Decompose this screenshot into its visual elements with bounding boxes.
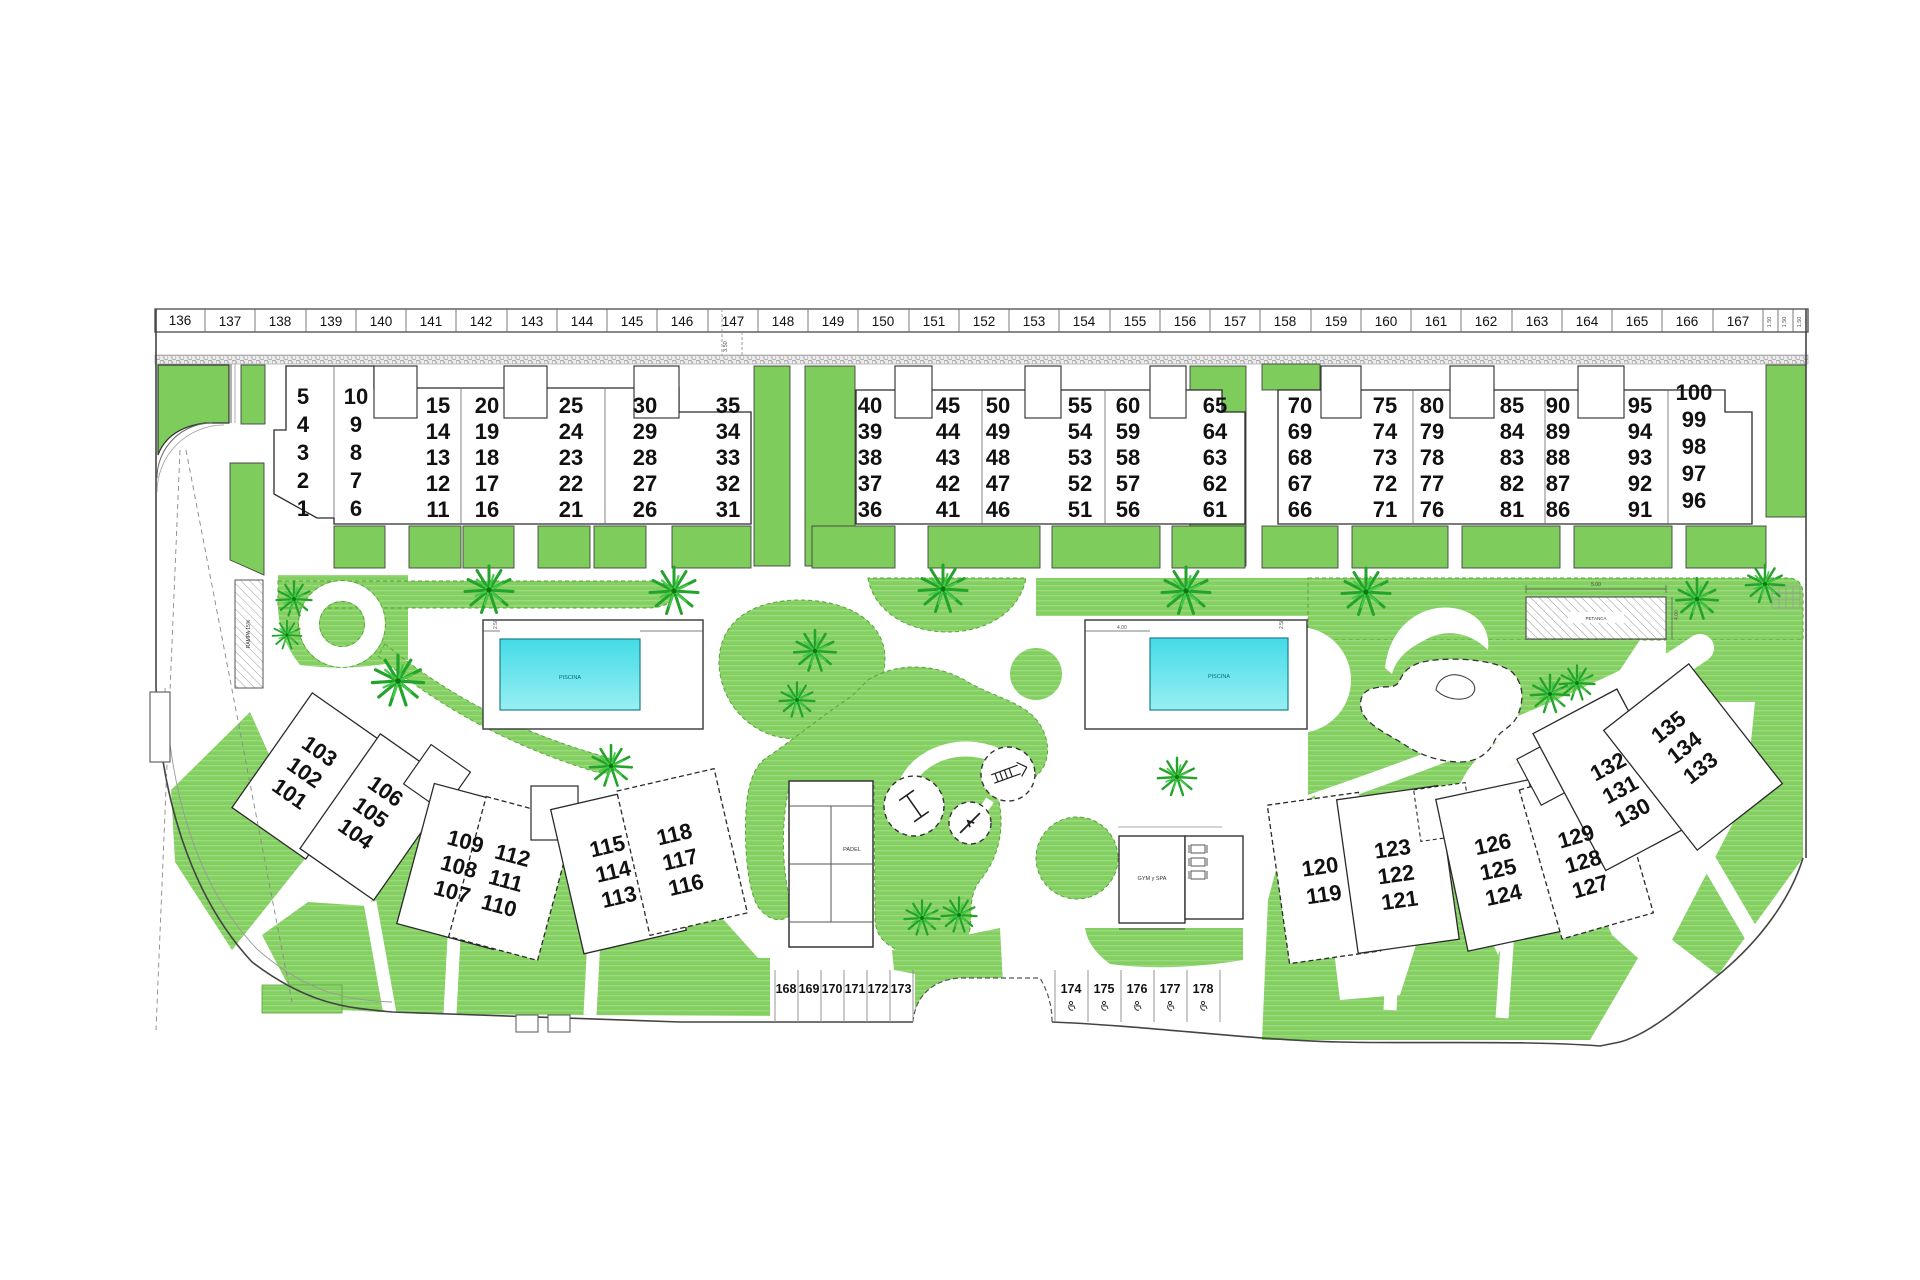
svg-text:178: 178 <box>1193 982 1214 996</box>
svg-text:157: 157 <box>1224 314 1247 329</box>
svg-text:34: 34 <box>716 419 741 444</box>
svg-text:67: 67 <box>1288 471 1312 496</box>
svg-text:90: 90 <box>1546 393 1570 418</box>
svg-text:168: 168 <box>776 982 797 996</box>
svg-text:141: 141 <box>420 314 443 329</box>
svg-text:37: 37 <box>858 471 882 496</box>
svg-text:82: 82 <box>1500 471 1524 496</box>
svg-text:144: 144 <box>571 314 594 329</box>
svg-text:121: 121 <box>1380 885 1420 915</box>
svg-text:PETANCA: PETANCA <box>1586 616 1607 621</box>
svg-text:4: 4 <box>297 412 310 437</box>
svg-text:84: 84 <box>1500 419 1525 444</box>
svg-text:174: 174 <box>1061 982 1082 996</box>
svg-text:123: 123 <box>1373 834 1413 864</box>
svg-text:158: 158 <box>1274 314 1297 329</box>
svg-text:27: 27 <box>633 471 657 496</box>
svg-text:19: 19 <box>475 419 499 444</box>
svg-text:100: 100 <box>1676 380 1713 405</box>
svg-text:171: 171 <box>845 982 866 996</box>
svg-text:PISCINA: PISCINA <box>559 675 581 681</box>
svg-text:38: 38 <box>858 445 882 470</box>
svg-text:4.00: 4.00 <box>1674 610 1680 620</box>
svg-text:71: 71 <box>1373 497 1397 522</box>
svg-text:30: 30 <box>633 393 657 418</box>
svg-text:GYM y SPA: GYM y SPA <box>1138 876 1167 882</box>
svg-text:96: 96 <box>1682 488 1706 513</box>
svg-text:147: 147 <box>722 314 745 329</box>
svg-text:159: 159 <box>1325 314 1348 329</box>
svg-text:142: 142 <box>470 314 493 329</box>
svg-text:170: 170 <box>822 982 843 996</box>
svg-text:62: 62 <box>1203 471 1227 496</box>
svg-text:162: 162 <box>1475 314 1498 329</box>
svg-text:3: 3 <box>297 440 309 465</box>
svg-text:155: 155 <box>1124 314 1147 329</box>
svg-text:172: 172 <box>868 982 889 996</box>
svg-text:4.00: 4.00 <box>1117 625 1127 631</box>
svg-text:99: 99 <box>1682 407 1706 432</box>
svg-text:10: 10 <box>344 384 368 409</box>
svg-text:57: 57 <box>1116 471 1140 496</box>
svg-text:56: 56 <box>1116 497 1140 522</box>
svg-text:77: 77 <box>1420 471 1444 496</box>
svg-text:151: 151 <box>923 314 946 329</box>
svg-text:70: 70 <box>1288 393 1312 418</box>
svg-text:80: 80 <box>1420 393 1444 418</box>
svg-text:39: 39 <box>858 419 882 444</box>
svg-text:72: 72 <box>1373 471 1397 496</box>
svg-text:93: 93 <box>1628 445 1652 470</box>
svg-text:48: 48 <box>986 445 1010 470</box>
svg-text:137: 137 <box>219 314 242 329</box>
svg-text:169: 169 <box>799 982 820 996</box>
svg-text:138: 138 <box>269 314 292 329</box>
svg-text:153: 153 <box>1023 314 1046 329</box>
svg-text:150: 150 <box>872 314 895 329</box>
svg-text:64: 64 <box>1203 419 1228 444</box>
svg-text:120: 120 <box>1300 852 1340 882</box>
svg-text:145: 145 <box>621 314 644 329</box>
svg-text:143: 143 <box>521 314 544 329</box>
svg-text:60: 60 <box>1116 393 1140 418</box>
svg-text:136: 136 <box>169 313 192 328</box>
svg-text:PISCINA: PISCINA <box>1208 674 1230 680</box>
svg-text:43: 43 <box>936 445 960 470</box>
svg-text:166: 166 <box>1676 314 1699 329</box>
svg-text:52: 52 <box>1068 471 1092 496</box>
svg-text:91: 91 <box>1628 497 1652 522</box>
svg-text:1.50: 1.50 <box>1797 317 1803 328</box>
svg-text:31: 31 <box>716 497 740 522</box>
svg-text:1.50: 1.50 <box>1782 317 1788 328</box>
svg-text:122: 122 <box>1376 860 1416 890</box>
svg-text:50: 50 <box>986 393 1010 418</box>
svg-text:13: 13 <box>426 445 450 470</box>
svg-text:45: 45 <box>936 393 960 418</box>
svg-text:8: 8 <box>350 440 362 465</box>
svg-text:65: 65 <box>1203 393 1227 418</box>
svg-text:73: 73 <box>1373 445 1397 470</box>
svg-text:140: 140 <box>370 314 393 329</box>
svg-text:20: 20 <box>475 393 499 418</box>
svg-text:175: 175 <box>1094 982 1115 996</box>
svg-text:98: 98 <box>1682 434 1706 459</box>
svg-text:47: 47 <box>986 471 1010 496</box>
svg-text:18: 18 <box>475 445 499 470</box>
svg-text:2.50: 2.50 <box>1279 619 1285 629</box>
svg-text:68: 68 <box>1288 445 1312 470</box>
svg-text:3.50: 3.50 <box>723 341 729 352</box>
svg-text:29: 29 <box>633 419 657 444</box>
svg-text:24: 24 <box>559 419 584 444</box>
svg-text:177: 177 <box>1160 982 1181 996</box>
svg-text:23: 23 <box>559 445 583 470</box>
svg-text:11: 11 <box>426 497 449 522</box>
svg-text:32: 32 <box>716 471 740 496</box>
svg-text:74: 74 <box>1373 419 1398 444</box>
svg-text:83: 83 <box>1500 445 1524 470</box>
svg-text:176: 176 <box>1127 982 1148 996</box>
svg-text:51: 51 <box>1068 497 1092 522</box>
svg-text:53: 53 <box>1068 445 1092 470</box>
svg-text:26: 26 <box>633 497 657 522</box>
svg-text:152: 152 <box>973 314 996 329</box>
svg-text:5: 5 <box>297 384 309 409</box>
svg-text:89: 89 <box>1546 419 1570 444</box>
svg-text:163: 163 <box>1526 314 1549 329</box>
svg-text:PADEL: PADEL <box>843 847 861 853</box>
svg-text:61: 61 <box>1203 497 1227 522</box>
svg-text:95: 95 <box>1628 393 1652 418</box>
svg-text:41: 41 <box>936 497 960 522</box>
svg-text:22: 22 <box>559 471 583 496</box>
svg-text:66: 66 <box>1288 497 1312 522</box>
svg-text:16: 16 <box>475 497 499 522</box>
svg-text:42: 42 <box>936 471 960 496</box>
svg-text:54: 54 <box>1068 419 1093 444</box>
svg-text:173: 173 <box>891 982 912 996</box>
svg-text:119: 119 <box>1305 880 1344 910</box>
svg-text:139: 139 <box>320 314 343 329</box>
svg-text:12: 12 <box>426 471 450 496</box>
svg-text:92: 92 <box>1628 471 1652 496</box>
svg-text:21: 21 <box>559 497 583 522</box>
svg-text:1.50: 1.50 <box>1767 317 1773 328</box>
svg-text:58: 58 <box>1116 445 1140 470</box>
svg-text:164: 164 <box>1576 314 1599 329</box>
svg-text:86: 86 <box>1546 497 1570 522</box>
svg-text:167: 167 <box>1727 314 1750 329</box>
svg-text:36: 36 <box>858 497 882 522</box>
svg-text:160: 160 <box>1375 314 1398 329</box>
svg-text:35: 35 <box>716 393 740 418</box>
svg-text:149: 149 <box>822 314 845 329</box>
svg-text:94: 94 <box>1628 419 1653 444</box>
svg-text:15: 15 <box>426 393 450 418</box>
svg-text:55: 55 <box>1068 393 1092 418</box>
svg-text:33: 33 <box>716 445 740 470</box>
svg-text:6: 6 <box>350 496 362 521</box>
svg-text:14: 14 <box>426 419 451 444</box>
svg-text:85: 85 <box>1500 393 1524 418</box>
svg-text:146: 146 <box>671 314 694 329</box>
svg-text:44: 44 <box>936 419 961 444</box>
svg-text:88: 88 <box>1546 445 1570 470</box>
svg-text:76: 76 <box>1420 497 1444 522</box>
svg-text:40: 40 <box>858 393 882 418</box>
svg-text:97: 97 <box>1682 461 1706 486</box>
svg-text:7: 7 <box>350 468 362 493</box>
svg-text:75: 75 <box>1373 393 1397 418</box>
svg-text:2: 2 <box>297 468 309 493</box>
svg-text:154: 154 <box>1073 314 1096 329</box>
svg-text:87: 87 <box>1546 471 1570 496</box>
svg-text:148: 148 <box>772 314 795 329</box>
svg-text:49: 49 <box>986 419 1010 444</box>
svg-text:25: 25 <box>559 393 583 418</box>
svg-text:165: 165 <box>1626 314 1649 329</box>
svg-text:59: 59 <box>1116 419 1140 444</box>
svg-text:69: 69 <box>1288 419 1312 444</box>
svg-text:79: 79 <box>1420 419 1444 444</box>
svg-text:63: 63 <box>1203 445 1227 470</box>
svg-text:46: 46 <box>986 497 1010 522</box>
svg-text:28: 28 <box>633 445 657 470</box>
svg-text:9: 9 <box>350 412 362 437</box>
svg-text:156: 156 <box>1174 314 1197 329</box>
svg-text:78: 78 <box>1420 445 1444 470</box>
svg-text:161: 161 <box>1425 314 1448 329</box>
svg-text:2.50: 2.50 <box>493 619 499 629</box>
svg-text:81: 81 <box>1500 497 1524 522</box>
svg-text:5.00: 5.00 <box>1591 582 1601 588</box>
svg-text:1: 1 <box>297 496 309 521</box>
svg-text:17: 17 <box>475 471 499 496</box>
svg-text:RAMPA 15%: RAMPA 15% <box>246 619 252 648</box>
